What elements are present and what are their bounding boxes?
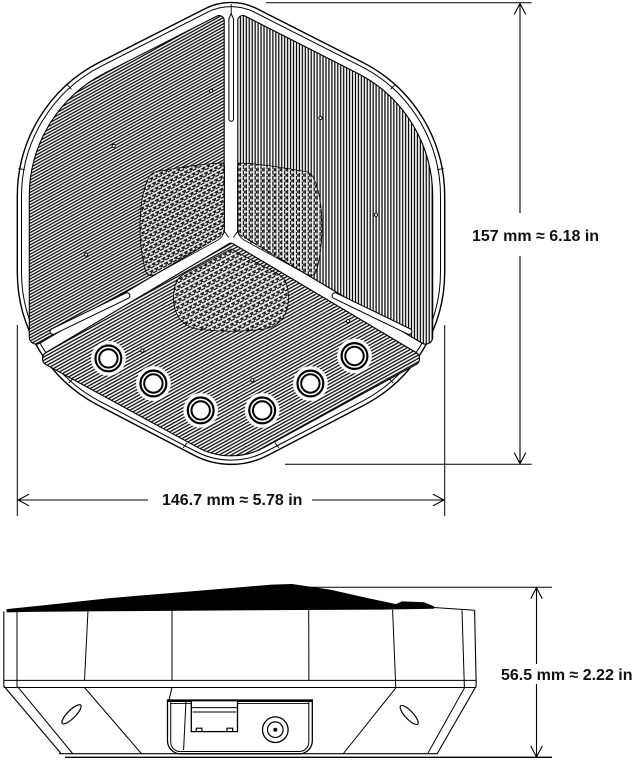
svg-text:157 mm ≈ 6.18 in: 157 mm ≈ 6.18 in (472, 228, 599, 245)
svg-text:146.7 mm ≈ 5.78 in: 146.7 mm ≈ 5.78 in (162, 492, 302, 509)
svg-text:56.5 mm ≈ 2.22 in: 56.5 mm ≈ 2.22 in (501, 667, 633, 684)
